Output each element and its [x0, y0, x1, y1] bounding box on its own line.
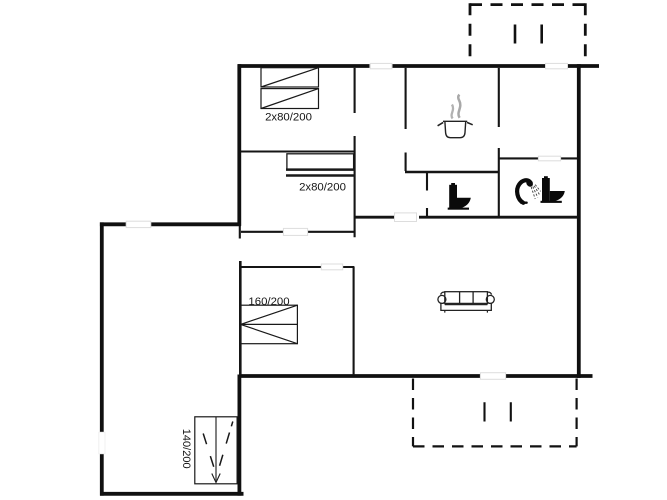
svg-text:140/200: 140/200 [180, 429, 192, 469]
svg-text:160/200: 160/200 [248, 296, 289, 308]
svg-text:2x80/200: 2x80/200 [265, 111, 312, 123]
svg-text:2x80/200: 2x80/200 [299, 181, 346, 193]
